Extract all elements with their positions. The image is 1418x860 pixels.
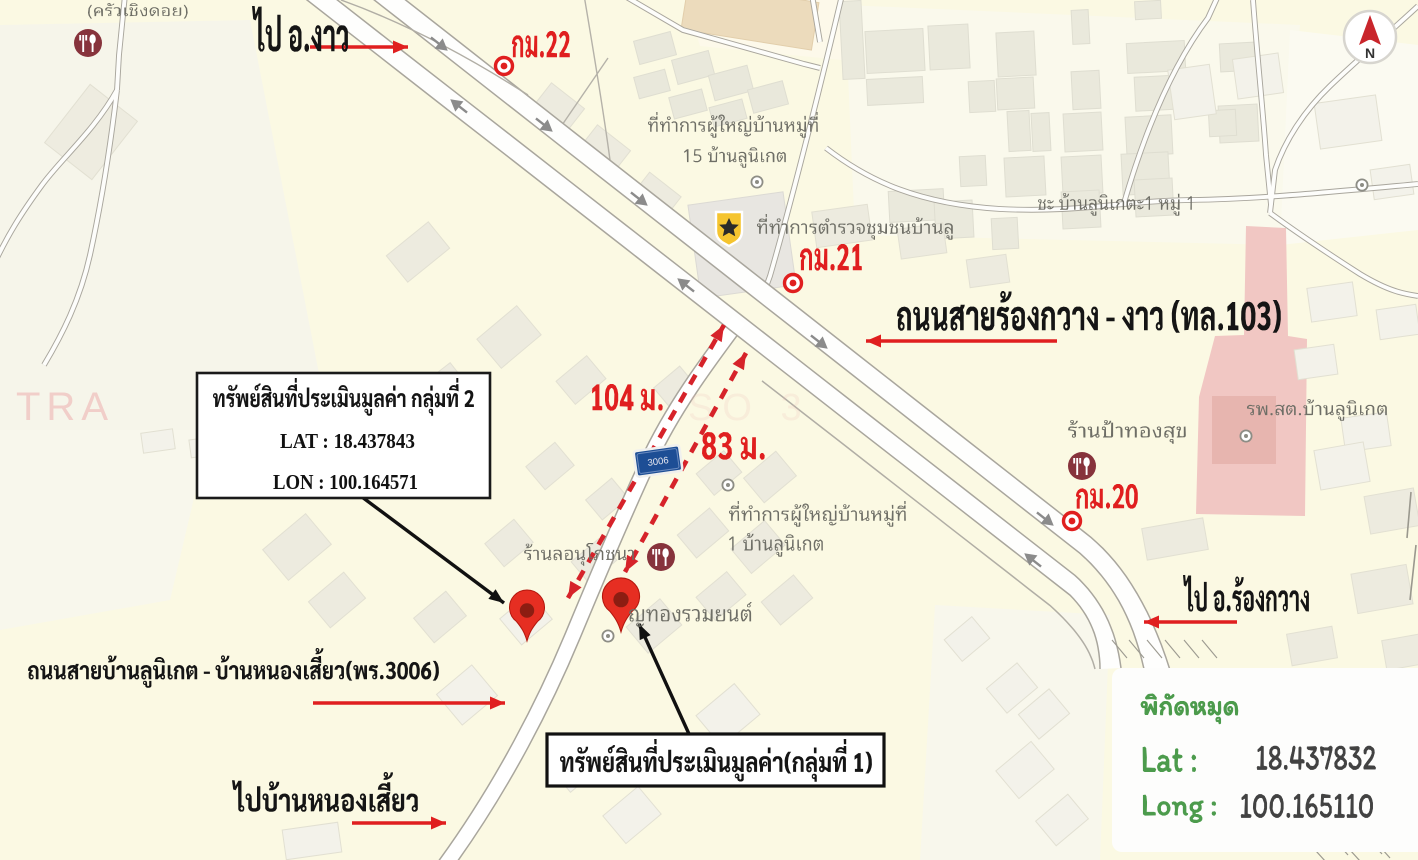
svg-text:TRA: TRA (16, 385, 114, 429)
svg-text:SO 3: SO 3 (688, 387, 811, 429)
svg-text:N: N (1365, 45, 1375, 61)
svg-text:LAT : 18.437843: LAT : 18.437843 (280, 429, 415, 453)
svg-text:LON : 100.164571: LON : 100.164571 (273, 470, 418, 494)
